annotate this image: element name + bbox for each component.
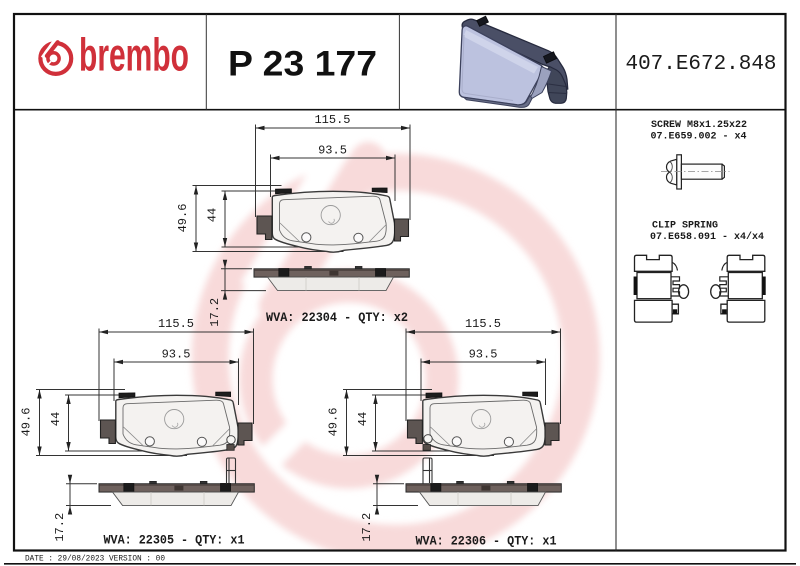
svg-text:CLIP SPRING: CLIP SPRING	[652, 220, 718, 231]
svg-text:407.E672.848: 407.E672.848	[626, 52, 777, 76]
svg-text:WVA: 22304 - QTY: x2: WVA: 22304 - QTY: x2	[266, 311, 408, 325]
svg-text:brembo: brembo	[79, 29, 189, 81]
svg-text:07.E659.002 - x4: 07.E659.002 - x4	[651, 132, 747, 143]
svg-text:07.E658.091 - x4/x4: 07.E658.091 - x4/x4	[650, 231, 764, 243]
svg-text:WVA: 22305 - QTY: x1: WVA: 22305 - QTY: x1	[104, 533, 245, 547]
svg-text:SCREW M8x1.25x22: SCREW M8x1.25x22	[651, 120, 747, 131]
svg-text:WVA: 22306 - QTY: x1: WVA: 22306 - QTY: x1	[416, 534, 557, 548]
svg-text:DATE : 29/08/2023 VERSION : 00: DATE : 29/08/2023 VERSION : 00	[25, 553, 165, 563]
svg-text:P 23 177: P 23 177	[228, 43, 377, 83]
